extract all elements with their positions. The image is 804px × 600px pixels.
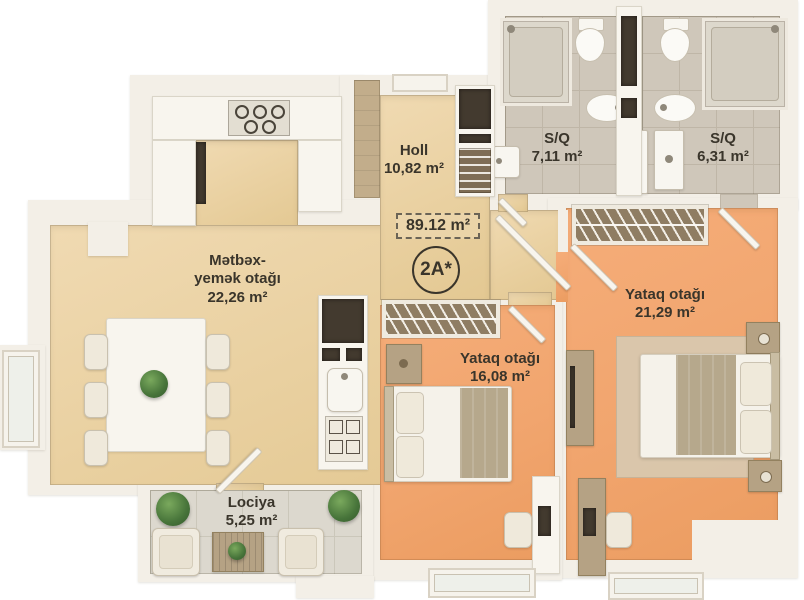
entry-floor [354,80,380,198]
room-label-kitchen-dining: Mətbəx- yemək otağı 22,26 m² [175,252,300,307]
pillow [740,362,772,406]
stove-icon [228,100,290,136]
room-name: S/Q [668,130,778,148]
entry-door [392,74,448,92]
duct-opening [621,98,637,118]
dining-chair [84,430,108,466]
shower-icon [500,18,572,106]
table-plant-icon [228,542,246,560]
pillow [396,392,424,434]
nightstand [746,322,780,354]
toilet-icon [575,18,605,63]
room-label-hall: Holl 10,82 m² [366,142,462,179]
dining-chair [206,430,230,466]
bidet-icon [654,94,696,122]
room-name: S/Q [507,130,607,148]
window-bedroom-large [608,572,704,600]
room-name: Lociya [199,494,304,512]
unit-badge: 2A* [412,246,460,294]
kitchen-cabinet [322,299,364,343]
window-dining [2,350,40,448]
pillow [740,410,772,454]
room-name: Yataq otağı [435,350,565,368]
blanket [460,388,508,478]
blanket [676,355,736,455]
armchair [278,528,324,576]
closet-opening [459,89,491,129]
wall-balcony-step [296,576,374,598]
room-label-bathroom-left: S/Q 7,11 m² [507,130,607,167]
laptop-icon [583,508,596,536]
room-name: Mətbəx- [175,252,300,270]
room-area: 22,26 m² [175,289,300,307]
unit-code: 2A* [420,259,452,281]
hall-wardrobe [459,148,491,193]
total-area-value: 89.12 m² [406,217,470,234]
room-name: yemək otağı [175,270,300,288]
floor-plan: Holl 10,82 m² S/Q 7,11 m² S/Q 6,31 m² Mə… [0,0,804,600]
desk-chair [606,512,632,548]
room-label-loggia: Lociya 5,25 m² [199,494,304,531]
wardrobe-bedroom-small [382,300,500,338]
nightstand [748,460,782,492]
cooktop-icon [325,416,363,462]
nightstand [386,344,422,384]
armchair [152,528,200,576]
duct-opening [621,16,637,86]
floor-kitchen-alcove [196,140,298,232]
room-area: 21,29 m² [600,304,730,322]
room-area: 10,82 m² [366,160,462,178]
toilet-icon [660,18,690,63]
tv-icon [570,366,575,428]
kitchen-cabinet-slot [322,348,340,361]
closet-slot [459,134,491,143]
kitchen-counter-left [152,140,196,226]
room-area: 6,31 m² [668,148,778,166]
room-label-bathroom-right: S/Q 6,31 m² [668,130,778,167]
dining-chair [206,334,230,370]
kitchen-counter-right [298,140,342,212]
dining-chair [84,334,108,370]
total-area-badge: 89.12 m² [396,213,480,239]
bed-headboard [384,386,394,482]
kitchen-sink-icon [327,368,363,412]
room-area: 5,25 m² [199,512,304,530]
laptop-icon [538,506,551,536]
window-bedroom-small [428,568,536,598]
room-label-bedroom-large: Yataq otağı 21,29 m² [600,286,730,323]
wall-bedroom-large-notch [692,520,798,578]
shower-icon [702,18,788,110]
kitchen-cabinet-slot [346,348,362,361]
dining-chair [84,382,108,418]
pillow [396,436,424,478]
room-name: Holl [366,142,462,160]
wardrobe-bedroom-large [572,205,708,245]
room-name: Yataq otağı [600,286,730,304]
wall-pillar [88,222,128,256]
desk-chair [504,512,532,548]
room-area: 16,08 m² [435,368,565,386]
dining-chair [206,382,230,418]
wall-door-stub [558,210,568,252]
room-label-bedroom-small: Yataq otağı 16,08 m² [435,350,565,387]
plant-icon [156,492,190,526]
table-plant-icon [140,370,168,398]
plant-icon [328,490,360,522]
room-area: 7,11 m² [507,148,607,166]
fridge-icon [196,142,206,204]
